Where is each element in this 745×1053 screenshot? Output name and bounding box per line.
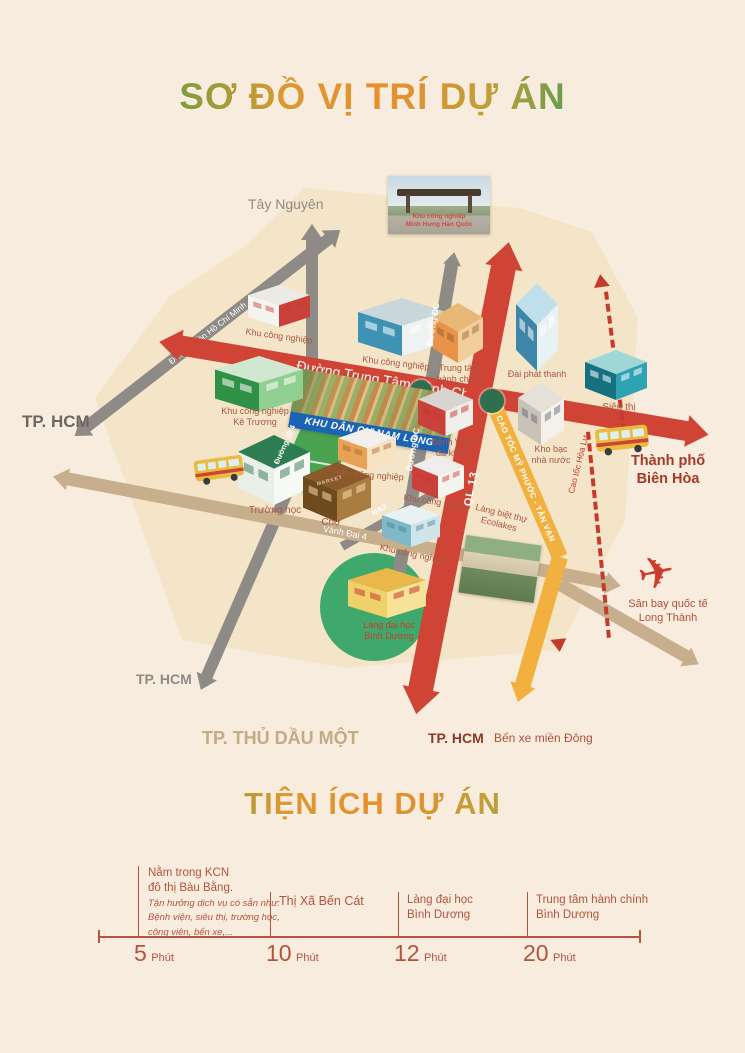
supermarket-label: Siêu thị [594, 402, 644, 415]
building-school [238, 435, 310, 505]
timeline-item-2-time: 10 Phút [266, 940, 319, 967]
timeline-item-3-time: 12 Phút [394, 940, 447, 967]
time-value: 12 [394, 940, 420, 966]
gate-post [468, 195, 472, 213]
building-industrial-park-red [248, 285, 310, 327]
hoa-lu-arrowhead-up [592, 273, 610, 288]
time-unit: Phút [424, 952, 447, 964]
roundabout-circle-east [480, 389, 504, 413]
hoa-lu-arrowhead-down [550, 638, 567, 653]
dest-tay-nguyen: Tây Nguyên [248, 196, 323, 212]
dest-tphcm-southwest: TP. HCM [136, 671, 192, 687]
radio-station-label: Đài phát thanh [500, 369, 574, 380]
building-industrial-park-teal [382, 505, 440, 547]
timeline-item-1-time: 5 Phút [134, 940, 174, 967]
time-value: 10 [266, 940, 292, 966]
time-unit: Phút [151, 952, 174, 964]
dest-ben-xe-mien-dong: Bến xe miền Đông [494, 731, 593, 745]
time-value: 20 [523, 940, 549, 966]
building-radio-station [516, 283, 558, 371]
building-industrial-park-green [215, 356, 303, 412]
timeline-divider-3 [398, 892, 399, 937]
page-title: SƠ ĐỒ VỊ TRÍ DỰ ÁN [0, 76, 745, 118]
university-label: Làng đại học Bình Dương [352, 620, 426, 643]
timeline-start-tick [98, 930, 100, 943]
building-industrial-park-red-2 [412, 455, 464, 499]
timeline-item-4-time: 20 Phút [523, 940, 576, 967]
photo-minh-hung-gate: Khu công nghiệp Minh Hưng Hàn Quốc [388, 176, 490, 234]
building-state-treasury [518, 383, 564, 445]
dest-tphcm-west: TP. HCM [22, 412, 90, 432]
timeline-item-1-heading: Nằm trong KCN đô thị Bàu Bằng. [148, 866, 233, 896]
school-label: Trường học [238, 505, 312, 518]
admin-center-label: Trung tâm hành chính [428, 363, 490, 386]
dest-bien-hoa: Thành phố Biên Hòa [622, 452, 714, 488]
timeline-divider-2 [270, 892, 271, 937]
dest-thu-dau-mot: TP. THỦ DẦU MỘT [202, 728, 359, 749]
amenities-title: TIỆN ÍCH DỰ ÁN [0, 786, 745, 822]
bus-icon [191, 449, 247, 490]
building-admin-center [433, 303, 483, 363]
time-value: 5 [134, 940, 147, 966]
timeline-item-3-heading: Làng đại học Bình Dương [407, 893, 473, 923]
gate-post [406, 195, 410, 213]
dest-tphcm-south: TP. HCM [428, 730, 484, 746]
building-university [348, 568, 426, 618]
location-infographic: SƠ ĐỒ VỊ TRÍ DỰ ÁN Đường mòn Hồ Chí Minh… [0, 0, 745, 1053]
market-label: Chợ [310, 517, 352, 530]
timeline-end-tick [639, 930, 641, 943]
hospital-label: Bệnh Viện đa khoa [424, 437, 480, 460]
airplane-icon: ✈ [634, 549, 679, 600]
building-industrial-park-orange [338, 428, 396, 470]
minh-hung-caption: Khu công nghiệp Minh Hưng Hàn Quốc [388, 213, 490, 229]
timeline-item-1-detail: Tận hưởng dịch vụ có sẵn như: Bệnh viện,… [148, 897, 280, 940]
time-unit: Phút [553, 952, 576, 964]
building-general-hospital [418, 388, 473, 436]
timeline-divider-4 [527, 892, 528, 937]
building-supermarket [585, 350, 647, 400]
dest-airport: Sân bay quốc tế Long Thành [612, 597, 724, 626]
timeline-divider-1 [138, 866, 139, 937]
timeline-axis [99, 936, 641, 938]
timeline-item-2-heading: Thị Xã Bến Cát [279, 893, 364, 909]
photo-ecolakes [458, 535, 541, 603]
time-unit: Phút [296, 952, 319, 964]
timeline-item-4-heading: Trung tâm hành chính Bình Dương [536, 893, 648, 923]
